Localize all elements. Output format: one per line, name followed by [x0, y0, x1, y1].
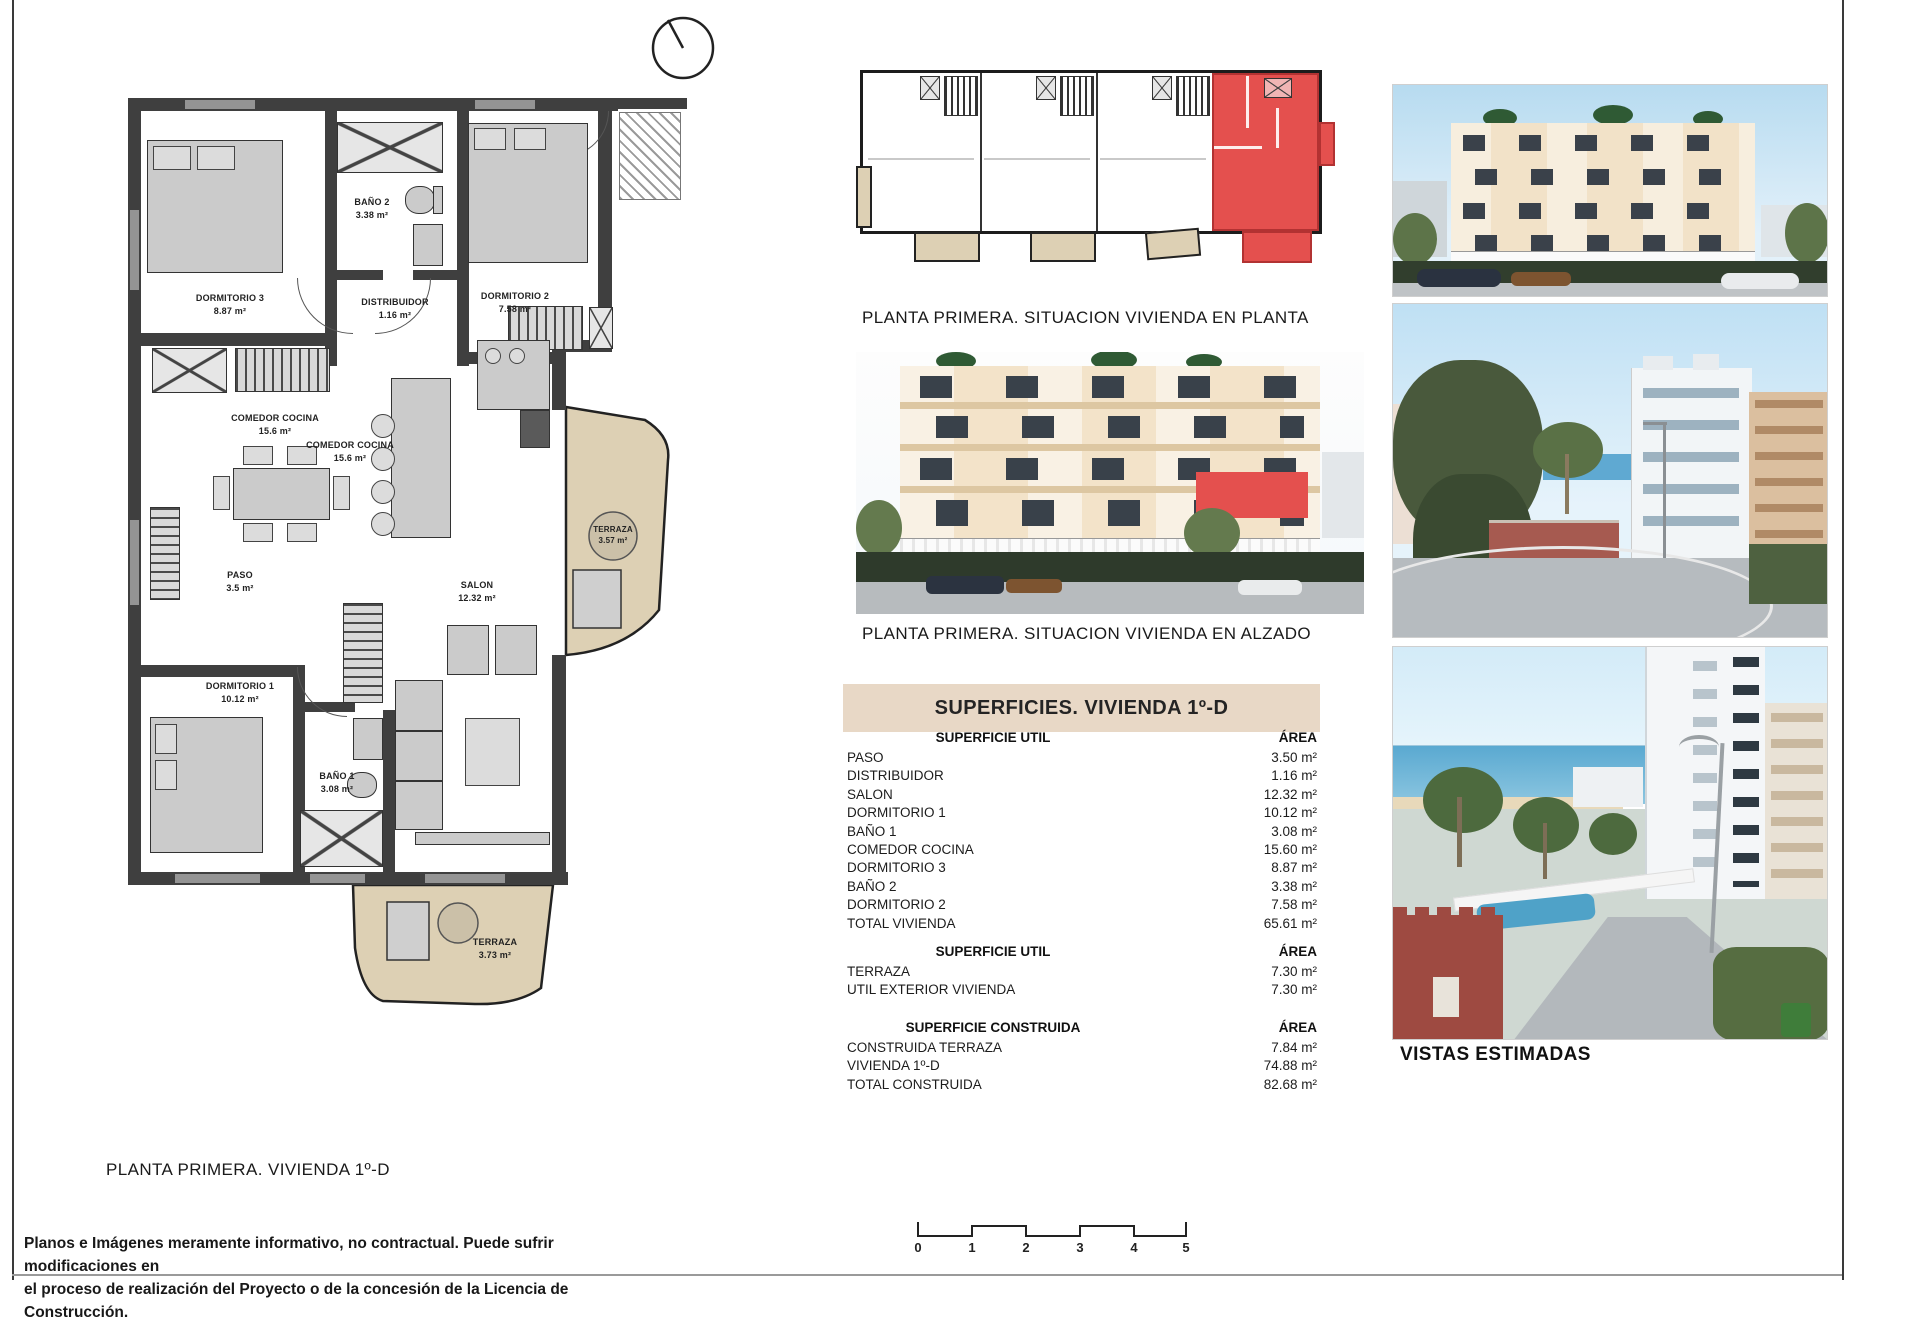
floor-plan-caption: PLANTA PRIMERA. VIVIENDA 1º-D — [106, 1160, 390, 1180]
table-row: TOTAL CONSTRUIDA82.68 m² — [843, 1076, 1320, 1094]
armchair — [495, 625, 537, 675]
table-row: BAÑO 13.08 m² — [843, 823, 1320, 841]
sofa — [395, 680, 443, 830]
scale-bar-line — [912, 1212, 1192, 1240]
window-row — [920, 376, 1304, 398]
room-label-dormitorio-3: DORMITORIO 38.87 m² — [170, 292, 290, 318]
wardrobe-bedroom3 — [235, 348, 330, 392]
red-unit-wall-hint — [1246, 76, 1249, 128]
pillow — [153, 146, 191, 170]
palm-trunk — [1543, 823, 1547, 879]
wardrobe-mirror-bedroom2 — [589, 307, 613, 349]
window-left-1 — [130, 210, 139, 290]
floor-slab — [900, 444, 1320, 451]
section-header: SUPERFICIE CONSTRUIDA ÁREA — [843, 1020, 1320, 1039]
tv-bench — [415, 832, 550, 845]
palm-trunk — [1457, 797, 1462, 867]
page-border-left — [12, 0, 14, 1280]
car-orange — [1006, 579, 1062, 593]
scale-label-3: 3 — [1073, 1240, 1087, 1255]
green-container — [1781, 1003, 1811, 1037]
pillow — [514, 128, 546, 150]
north-indicator-icon — [645, 8, 721, 84]
window-slits — [1733, 657, 1759, 887]
shower-bath2 — [337, 122, 443, 173]
elevator — [1036, 76, 1056, 100]
room-label-bano-1: BAÑO 13.08 m² — [277, 770, 397, 796]
disclaimer-text: Planos e Imágenes meramente informativo,… — [24, 1232, 664, 1324]
elevation-render — [856, 352, 1364, 614]
page-border-right — [1842, 0, 1844, 1280]
scale-label-4: 4 — [1127, 1240, 1141, 1255]
beach-building — [1573, 767, 1643, 807]
sofa-cushion-line — [396, 730, 442, 732]
situation-plan-caption: PLANTA PRIMERA. SITUACION VIVIENDA EN PL… — [862, 308, 1309, 328]
interior-wall-hint — [984, 158, 1090, 160]
dining-table — [233, 468, 330, 520]
disclaimer-line-2: el proceso de realización del Proyecto o… — [24, 1278, 664, 1324]
table-row: UTIL EXTERIOR VIVIENDA7.30 m² — [843, 981, 1320, 999]
surfaces-table: SUPERFICIES. VIVIENDA 1º-D SUPERFICIE UT… — [843, 684, 1320, 732]
chair — [213, 476, 230, 510]
burner — [509, 348, 525, 364]
red-unit-wardrobe — [1264, 78, 1292, 98]
table-row: DISTRIBUIDOR1.16 m² — [843, 767, 1320, 785]
table-row: DORMITORIO 38.87 m² — [843, 859, 1320, 877]
red-building-crenellation — [1393, 907, 1503, 917]
car-orange — [1511, 272, 1571, 286]
window-slits — [1643, 388, 1739, 538]
building-situation-plan — [856, 66, 1326, 272]
room-label-comedor-cocina-2: COMEDOR COCINA15.6 m² — [290, 439, 410, 465]
shower-bath1 — [300, 810, 383, 867]
roof-palm — [1593, 105, 1633, 125]
terrace-door-opening — [425, 874, 505, 883]
wardrobe-mirror-bedroom3 — [152, 348, 227, 393]
graphic-scale-bar: 0 1 2 3 4 5 — [912, 1212, 1192, 1258]
wall-top-entry — [615, 98, 687, 109]
scale-label-0: 0 — [911, 1240, 925, 1255]
radiator — [150, 507, 180, 600]
stairs-hatch — [1176, 76, 1210, 116]
greenery — [1749, 544, 1828, 604]
surfaces-title: SUPERFICIES. VIVIENDA 1º-D — [843, 684, 1320, 732]
table-row: SALON12.32 m² — [843, 786, 1320, 804]
interior-wall-hint — [1100, 158, 1206, 160]
chair — [243, 523, 273, 542]
unit-divider — [1096, 73, 1098, 231]
window-bottom-2 — [310, 874, 365, 883]
chair — [243, 446, 273, 465]
unit-divider — [980, 73, 982, 231]
red-unit-wall-hint — [1276, 108, 1279, 148]
room-label-comedor-cocina-1: COMEDOR COCINA15.6 m² — [215, 412, 335, 438]
elevator — [920, 76, 940, 100]
street-lamp-arm — [1679, 735, 1719, 759]
tree — [1184, 508, 1240, 558]
photo-street-view — [1392, 303, 1828, 638]
armchair — [447, 625, 489, 675]
car-white — [1721, 273, 1799, 289]
stool — [371, 414, 395, 438]
rooftop-box — [1693, 354, 1719, 370]
tree — [1393, 213, 1437, 265]
toilet-tank-bath2 — [433, 186, 443, 214]
palm-trunk — [1565, 454, 1569, 514]
table-row: DORMITORIO 110.12 m² — [843, 804, 1320, 822]
room-label-distribuidor: DISTRIBUIDOR1.16 m² — [340, 296, 450, 322]
table-row: PASO3.50 m² — [843, 749, 1320, 767]
pillow — [155, 724, 177, 754]
photo-building-render — [1392, 84, 1828, 297]
wall-bath2-left — [325, 98, 337, 278]
street-lamp-arm — [1643, 422, 1667, 425]
wall-right-kitchen — [552, 352, 566, 410]
street-lamp — [1663, 424, 1666, 558]
surfaces-section-util-2: SUPERFICIE UTIL ÁREA TERRAZA7.30 m² UTIL… — [843, 944, 1320, 1000]
burner — [485, 348, 501, 364]
window-row — [1463, 135, 1743, 151]
neighbor-building — [1322, 452, 1364, 538]
pillow — [474, 128, 506, 150]
window-slits — [1755, 400, 1823, 550]
car-dark — [1417, 269, 1501, 287]
palm-tree — [1423, 767, 1503, 833]
vistas-estimadas-caption: VISTAS ESTIMADAS — [1400, 1044, 1591, 1066]
wall-right-salon — [552, 655, 566, 885]
surfaces-section-construida: SUPERFICIE CONSTRUIDA ÁREA CONSTRUIDA TE… — [843, 1020, 1320, 1094]
window-top-1 — [185, 100, 255, 109]
table-row: TOTAL VIVIENDA65.61 m² — [843, 915, 1320, 933]
photo-coastal-view — [1392, 646, 1828, 1040]
window-row — [1475, 169, 1743, 185]
red-unit-wall-hint — [1214, 146, 1262, 149]
room-label-dormitorio-2: DORMITORIO 27.58 m² — [455, 290, 575, 316]
stool — [371, 480, 395, 504]
table-row: TERRAZA7.30 m² — [843, 963, 1320, 981]
elevator — [1152, 76, 1172, 100]
tall-wardrobe — [343, 603, 383, 703]
table-row: COMEDOR COCINA15.60 m² — [843, 841, 1320, 859]
window-bottom-1 — [175, 874, 260, 883]
room-label-bano-2: BAÑO 23.38 m² — [312, 196, 432, 222]
wall-paso-bedroom1 — [141, 665, 293, 677]
stairs-hatch — [944, 76, 978, 116]
red-building-door — [1433, 977, 1459, 1017]
pillow — [155, 760, 177, 790]
highlighted-unit-bay — [1319, 122, 1335, 166]
table-row: BAÑO 23.38 m² — [843, 878, 1320, 896]
room-label-dormitorio-1: DORMITORIO 110.12 m² — [180, 680, 300, 706]
sofa-cushion-line — [396, 780, 442, 782]
disclaimer-line-1: Planos e Imágenes meramente informativo,… — [24, 1232, 664, 1278]
car-dark — [926, 576, 1004, 594]
tree — [1785, 203, 1828, 263]
sink-bath1 — [353, 718, 383, 760]
room-label-terraza-bottom: TERRAZA3.73 m² — [435, 936, 555, 962]
chair — [287, 523, 317, 542]
sink-bath2 — [413, 224, 443, 266]
table-row: CONSTRUIDA TERRAZA7.84 m² — [843, 1039, 1320, 1057]
stairs-hatch — [1060, 76, 1094, 116]
scale-label-1: 1 — [965, 1240, 979, 1255]
stairwell-hatch — [619, 112, 681, 200]
room-label-salon: SALON12.32 m² — [417, 579, 537, 605]
chair — [333, 476, 350, 510]
car-white — [1238, 580, 1302, 595]
scale-label-2: 2 — [1019, 1240, 1033, 1255]
apartment-floor-plan: DORMITORIO 38.87 m² BAÑO 23.38 m² DISTRI… — [125, 90, 825, 1170]
side-terrace — [856, 166, 872, 228]
window-top-2 — [475, 100, 535, 109]
window-row — [1475, 235, 1743, 251]
window-row — [936, 416, 1304, 438]
coffee-table — [465, 718, 520, 786]
rooftop-box — [1643, 356, 1673, 370]
wall-bedroom3-bottom — [141, 333, 331, 346]
window-left-2 — [130, 520, 139, 605]
kitchen-sink — [520, 410, 550, 448]
table-row: VIVIENDA 1º-D74.88 m² — [843, 1057, 1320, 1075]
window-row — [1463, 203, 1743, 219]
elevation-caption: PLANTA PRIMERA. SITUACION VIVIENDA EN AL… — [862, 624, 1311, 644]
scale-label-5: 5 — [1179, 1240, 1193, 1255]
surfaces-section-util-1: SUPERFICIE UTIL ÁREA PASO3.50 m² DISTRIB… — [843, 730, 1320, 933]
section-header: SUPERFICIE UTIL ÁREA — [843, 730, 1320, 749]
room-label-terraza-right: TERRAZA3.57 m² — [553, 524, 673, 546]
balcony — [1030, 232, 1096, 262]
table-row: DORMITORIO 27.58 m² — [843, 896, 1320, 914]
interior-wall-hint — [868, 158, 974, 160]
palm-tree — [1589, 813, 1637, 855]
window-slits — [1771, 713, 1823, 893]
balcony — [914, 232, 980, 262]
highlighted-unit-balcony — [1242, 231, 1312, 263]
room-label-paso: PASO3.5 m² — [180, 569, 300, 595]
section-header: SUPERFICIE UTIL ÁREA — [843, 944, 1320, 963]
wall-bath1-right — [383, 710, 395, 885]
balcony — [1145, 228, 1201, 261]
window-slits — [1693, 661, 1717, 881]
stool — [371, 512, 395, 536]
tree — [856, 500, 902, 556]
pillow — [197, 146, 235, 170]
floor-slab — [900, 402, 1320, 409]
